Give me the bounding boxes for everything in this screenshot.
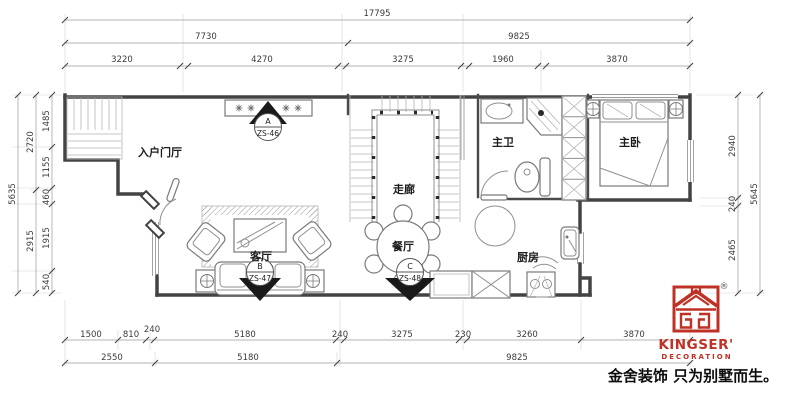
- toilet: [515, 158, 550, 196]
- bath-door-arc: [481, 171, 508, 197]
- armchair-right: [291, 220, 333, 262]
- sink: [561, 227, 579, 259]
- floor-plan-drawing: 17795 7730 9825 3220 4270 3275 1960 3870…: [0, 0, 800, 402]
- door-swing-arc: [160, 199, 176, 225]
- room-label-dining: 餐厅: [391, 239, 414, 253]
- dim-left-inner-3: 460: [42, 189, 52, 205]
- door-jamb-upper: [141, 191, 159, 209]
- dim-bot2-2: 5180: [237, 353, 259, 363]
- vanity: [481, 99, 523, 123]
- marker-code: ZS-48: [399, 274, 421, 283]
- dim-bot1-4: 5180: [234, 330, 256, 340]
- marker-letter: B: [257, 262, 263, 271]
- room-label-entry: 入户门厅: [138, 145, 182, 159]
- marker-letter: A: [265, 117, 271, 126]
- kitchen: [430, 206, 579, 298]
- dim-bot1-7: 230: [455, 330, 471, 340]
- dim-right-inner-3: 2465: [728, 239, 738, 261]
- dim-bot2-1: 2550: [101, 353, 123, 363]
- dim-top2-right: 9825: [508, 32, 530, 42]
- entry-door: [141, 178, 180, 238]
- dim-left-inner-2: 1155: [42, 156, 52, 178]
- dim-right-total: 5645: [750, 183, 760, 205]
- dim-left-inner-5: 540: [42, 274, 52, 290]
- bath-door-leaf: [481, 195, 507, 200]
- dim-bot1-3: 240: [144, 325, 160, 335]
- room-label-living: 客厅: [249, 249, 272, 263]
- room-label-master-bath: 主卫: [492, 135, 514, 149]
- dim-top3-4: 1960: [492, 55, 514, 65]
- logo-brand: KINGSER': [658, 337, 733, 353]
- door-jamb-lower: [146, 220, 164, 238]
- wardrobe: [562, 96, 586, 200]
- dim-bot1-5: 240: [332, 330, 348, 340]
- dim-bot1-9: 3870: [623, 330, 645, 340]
- logo-emblem: [674, 287, 718, 331]
- floor-plan-page: 17795 7730 9825 3220 4270 3275 1960 3870…: [0, 0, 800, 402]
- dim-bot1-2: 810: [123, 330, 139, 340]
- marker-code: ZS-46: [257, 129, 279, 138]
- extension-lines: [12, 14, 764, 367]
- logo-sub: DECORATION: [661, 353, 732, 361]
- dim-bot2-3: 9825: [506, 353, 528, 363]
- dim-top3-5: 3870: [606, 55, 628, 65]
- dim-bot1-6: 3275: [391, 330, 413, 340]
- lamp-icon: [201, 275, 214, 288]
- dim-top2-left: 7730: [195, 32, 217, 42]
- armchair-left: [185, 221, 227, 263]
- dim-top3-3: 3275: [392, 55, 414, 65]
- lamp-icon: [307, 275, 320, 288]
- logo-tagline: 金舍装饰 只为别墅而生。: [607, 367, 778, 385]
- marker-letter: C: [407, 262, 413, 271]
- registered-mark: ®: [720, 282, 729, 292]
- entry-stair: [67, 97, 122, 159]
- carpet-hatch-top: [202, 206, 318, 215]
- dim-top3-2: 4270: [251, 55, 273, 65]
- corridor-niche-window: [461, 95, 464, 160]
- dim-bot1-1: 1500: [80, 330, 102, 340]
- marker-code: ZS-47: [249, 274, 271, 283]
- dim-left-inner-1: 1485: [42, 110, 52, 132]
- shower-door-knob: [538, 110, 544, 116]
- dim-top-total: 17795: [363, 9, 390, 19]
- room-label-corridor: 走廊: [392, 182, 415, 196]
- dim-left-mid-2: 2915: [26, 230, 36, 252]
- dim-right-inner-2: 240: [728, 196, 738, 212]
- master-bath: [481, 98, 562, 200]
- dimension-lines: [15, 17, 763, 366]
- dim-left-total: 5635: [8, 183, 18, 205]
- room-label-kitchen: 厨房: [517, 250, 539, 264]
- dim-top3-1: 3220: [111, 55, 133, 65]
- counter: [430, 271, 472, 298]
- shower: [527, 98, 562, 135]
- room-label-master-bed: 主卧: [619, 135, 641, 149]
- lamp-icon: [587, 103, 600, 116]
- door-leaf: [166, 178, 180, 203]
- kitchen-round-table: [475, 206, 515, 246]
- dim-bot1-8: 3260: [516, 330, 538, 340]
- corridor-stair: [350, 95, 460, 222]
- dim-right-inner-1: 2940: [728, 135, 738, 157]
- lamp-icon: [670, 103, 683, 116]
- dim-left-mid-1: 2720: [26, 131, 36, 153]
- dim-left-inner-4: 1915: [42, 227, 52, 249]
